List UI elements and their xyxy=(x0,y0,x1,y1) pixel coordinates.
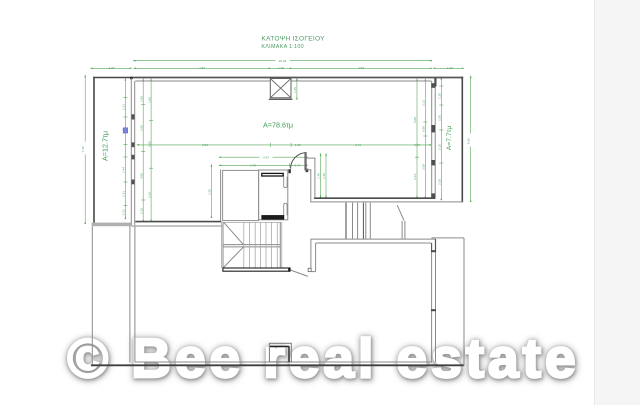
svg-text:1.55: 1.55 xyxy=(437,115,441,121)
svg-text:1.41: 1.41 xyxy=(122,191,126,197)
svg-text:0.90: 0.90 xyxy=(421,126,425,132)
svg-text:1.05: 1.05 xyxy=(139,125,143,131)
svg-text:1.25: 1.25 xyxy=(293,87,297,93)
svg-text:4.05: 4.05 xyxy=(139,173,143,179)
svg-text:2.10: 2.10 xyxy=(437,144,441,150)
svg-text:1.65: 1.65 xyxy=(207,189,211,195)
svg-text:1.06: 1.06 xyxy=(147,141,151,147)
svg-text:3.51: 3.51 xyxy=(202,143,208,147)
svg-text:6.30: 6.30 xyxy=(467,138,471,144)
svg-text:1.92: 1.92 xyxy=(278,66,284,70)
svg-text:1.92: 1.92 xyxy=(295,143,301,147)
svg-text:4.57: 4.57 xyxy=(199,66,205,70)
svg-text:1.06: 1.06 xyxy=(139,96,143,102)
svg-text:1.13: 1.13 xyxy=(122,104,126,110)
svg-text:2.36: 2.36 xyxy=(322,173,326,179)
svg-text:2.10: 2.10 xyxy=(139,208,143,214)
svg-text:2.13: 2.13 xyxy=(421,100,425,106)
svg-text:3.41: 3.41 xyxy=(355,143,361,147)
svg-text:A=12.7τμ: A=12.7τμ xyxy=(100,131,109,161)
svg-text:1.20: 1.20 xyxy=(437,93,441,99)
svg-text:A=7.7τμ: A=7.7τμ xyxy=(446,126,453,151)
svg-text:1.06: 1.06 xyxy=(147,97,151,103)
svg-text:2.10: 2.10 xyxy=(122,209,126,215)
svg-text:ΚΛΙΜΑΚΑ 1:100: ΚΛΙΜΑΚΑ 1:100 xyxy=(261,44,304,50)
svg-text:3.08: 3.08 xyxy=(421,164,425,170)
svg-text:2.64: 2.64 xyxy=(413,174,417,180)
svg-text:5.08: 5.08 xyxy=(413,117,417,123)
svg-text:2.30: 2.30 xyxy=(437,179,441,185)
svg-text:1.90: 1.90 xyxy=(447,66,453,70)
svg-text:4.53: 4.53 xyxy=(358,66,364,70)
svg-text:3.75: 3.75 xyxy=(250,164,256,168)
svg-text:0.77: 0.77 xyxy=(294,164,300,168)
svg-text:3.14: 3.14 xyxy=(147,192,151,198)
svg-text:A=78.6τμ: A=78.6τμ xyxy=(263,121,293,130)
svg-text:19.04: 19.04 xyxy=(279,59,287,63)
svg-text:1.90: 1.90 xyxy=(108,66,114,70)
svg-text:7.16: 7.16 xyxy=(81,146,85,152)
svg-text:4.57: 4.57 xyxy=(263,155,269,159)
svg-text:ΚΑΤΟΨΗ ΙΣΟΓΕΙΟΥ: ΚΑΤΟΨΗ ΙΣΟΓΕΙΟΥ xyxy=(261,36,325,43)
svg-text:1.44: 1.44 xyxy=(122,167,126,173)
svg-text:1.40: 1.40 xyxy=(317,173,321,179)
